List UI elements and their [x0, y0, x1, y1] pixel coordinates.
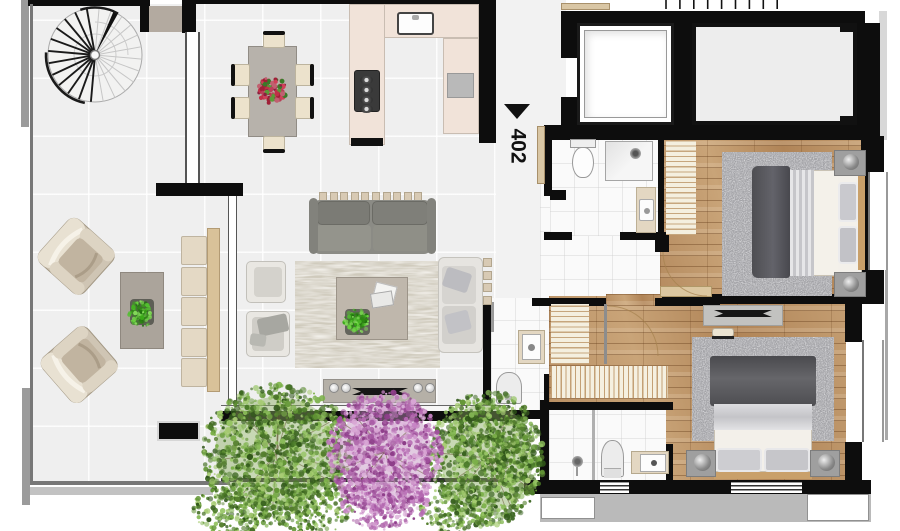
svg-text:402: 402 — [506, 128, 529, 163]
